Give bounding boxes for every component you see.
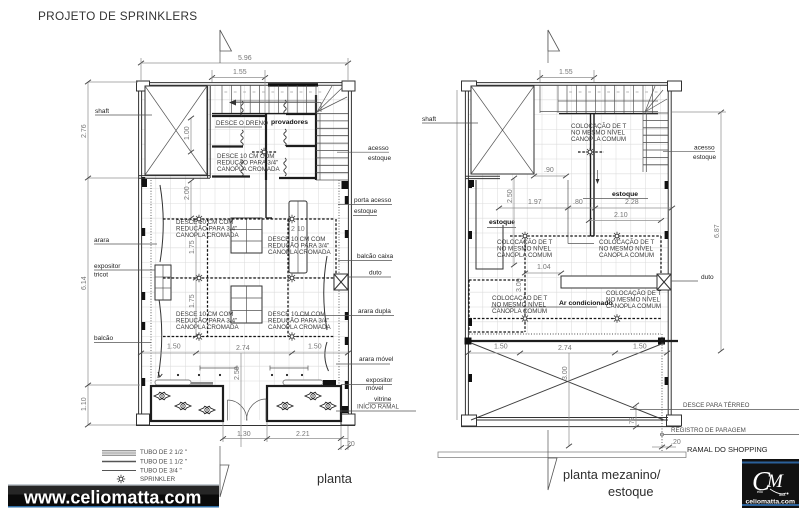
- svg-text:2.10: 2.10: [614, 212, 628, 219]
- svg-text:estoque: estoque: [368, 155, 392, 162]
- svg-text:SPRINKLER: SPRINKLER: [140, 476, 176, 483]
- svg-text:1.04: 1.04: [537, 264, 551, 271]
- svg-text:2.74: 2.74: [236, 345, 250, 352]
- svg-text:75: 75: [630, 417, 636, 424]
- svg-text:TUBO DE 3/4 ": TUBO DE 3/4 ": [140, 468, 182, 475]
- svg-text:estoque: estoque: [489, 219, 515, 226]
- svg-text:M: M: [766, 471, 784, 492]
- svg-text:CANOPLA CROMADA: CANOPLA CROMADA: [176, 232, 239, 239]
- svg-text:2.21: 2.21: [296, 431, 310, 438]
- svg-text:duto: duto: [701, 274, 714, 281]
- svg-text:CANOPLA COMUM: CANOPLA COMUM: [599, 252, 654, 259]
- svg-text:shaft: shaft: [422, 116, 436, 123]
- svg-text:2.28: 2.28: [625, 199, 639, 206]
- svg-text:.90: .90: [544, 167, 554, 174]
- svg-text:élio: élio: [757, 490, 763, 494]
- svg-text:1.10: 1.10: [81, 397, 88, 411]
- svg-text:porta acesso: porta acesso: [354, 197, 392, 204]
- svg-text:DESCE O DRENO: DESCE O DRENO: [216, 120, 268, 127]
- svg-text:DESCE PARA TÉRREO: DESCE PARA TÉRREO: [683, 402, 750, 409]
- svg-text:tricot: tricot: [94, 272, 108, 279]
- svg-text:expositor: expositor: [366, 377, 393, 384]
- svg-text:planta mezanino/: planta mezanino/: [563, 467, 661, 482]
- svg-text:arara dupla: arara dupla: [358, 308, 391, 315]
- svg-text:duto: duto: [369, 270, 382, 277]
- svg-text:1.50: 1.50: [494, 344, 508, 351]
- svg-text:TUBO DE 1 1/2 ": TUBO DE 1 1/2 ": [140, 459, 187, 466]
- svg-text:PROJETO DE SPRINKLERS: PROJETO DE SPRINKLERS: [38, 9, 197, 23]
- svg-text:1.55: 1.55: [559, 69, 573, 76]
- svg-text:Ar condicionado: Ar condicionado: [559, 300, 613, 307]
- svg-text:1.50: 1.50: [308, 344, 322, 351]
- svg-text:CANOPLA CROMADA: CANOPLA CROMADA: [268, 249, 331, 256]
- svg-text:CANOPLA COMUM: CANOPLA COMUM: [497, 252, 552, 259]
- svg-text:móvel: móvel: [366, 385, 384, 392]
- svg-text:estoque: estoque: [612, 191, 638, 198]
- svg-text:www.celiomatta.com: www.celiomatta.com: [23, 488, 201, 508]
- svg-text:.80: .80: [573, 199, 583, 206]
- svg-text:1.30: 1.30: [237, 431, 251, 438]
- svg-text:planta: planta: [317, 471, 353, 486]
- svg-text:2.74: 2.74: [558, 345, 572, 352]
- svg-text:2.50: 2.50: [507, 189, 514, 203]
- svg-text:celiomatta.com: celiomatta.com: [746, 499, 795, 506]
- svg-text:provadores: provadores: [271, 119, 308, 126]
- svg-text:arara móvel: arara móvel: [359, 356, 394, 363]
- svg-text:2.50: 2.50: [234, 366, 241, 380]
- svg-text:CANOPLA COMUM: CANOPLA COMUM: [606, 303, 661, 310]
- svg-text:TUBO DE 2 1/2 ": TUBO DE 2 1/2 ": [140, 449, 187, 456]
- svg-text:CANOPLA COMUM: CANOPLA COMUM: [571, 136, 626, 143]
- svg-text:shaft: shaft: [95, 108, 109, 115]
- svg-text:3.00: 3.00: [562, 366, 569, 380]
- svg-text:REGISTRO DE PARAGEM: REGISTRO DE PARAGEM: [671, 427, 746, 434]
- svg-text:1.50: 1.50: [633, 344, 647, 351]
- svg-text:1.75: 1.75: [189, 294, 196, 308]
- svg-text:2 10: 2 10: [291, 226, 305, 233]
- svg-text:estoque: estoque: [354, 208, 378, 215]
- svg-text:CANOPLA CROMADA: CANOPLA CROMADA: [176, 324, 239, 331]
- svg-text:CANOPLA CROMADA: CANOPLA CROMADA: [268, 324, 331, 331]
- svg-text:RAMAL DO SHOPPING: RAMAL DO SHOPPING: [687, 445, 768, 454]
- svg-text:atta: atta: [779, 493, 786, 497]
- svg-text:1.55: 1.55: [233, 69, 247, 76]
- svg-text:balcão: balcão: [94, 335, 114, 342]
- svg-text:3.00: 3.00: [516, 278, 523, 292]
- svg-text:vitrine: vitrine: [374, 396, 392, 403]
- svg-text:2.76: 2.76: [81, 124, 88, 138]
- svg-text:.20: .20: [671, 439, 681, 446]
- svg-text:estoque: estoque: [608, 484, 654, 499]
- svg-text:arara: arara: [94, 237, 110, 244]
- svg-text:5.96: 5.96: [238, 55, 252, 62]
- svg-text:expositor: expositor: [94, 263, 121, 270]
- svg-text:estoque: estoque: [693, 154, 717, 161]
- svg-text:6.14: 6.14: [81, 276, 88, 290]
- svg-text:balcão caixa: balcão caixa: [357, 253, 394, 260]
- svg-text:1.00: 1.00: [184, 126, 191, 140]
- svg-text:1.97: 1.97: [528, 199, 542, 206]
- svg-text:1.75: 1.75: [189, 240, 196, 254]
- svg-text:CANOPLA CROMADA: CANOPLA CROMADA: [217, 166, 280, 173]
- svg-text:1.50: 1.50: [167, 344, 181, 351]
- svg-text:2.00: 2.00: [184, 186, 191, 200]
- svg-text:acesso: acesso: [368, 145, 389, 152]
- svg-text:6.87: 6.87: [714, 224, 721, 238]
- svg-text:.20: .20: [345, 441, 355, 448]
- svg-text:acesso: acesso: [694, 145, 715, 152]
- svg-text:INÍCIO RAMAL: INÍCIO RAMAL: [357, 404, 400, 411]
- svg-text:CANOPLA COMUM: CANOPLA COMUM: [492, 308, 547, 315]
